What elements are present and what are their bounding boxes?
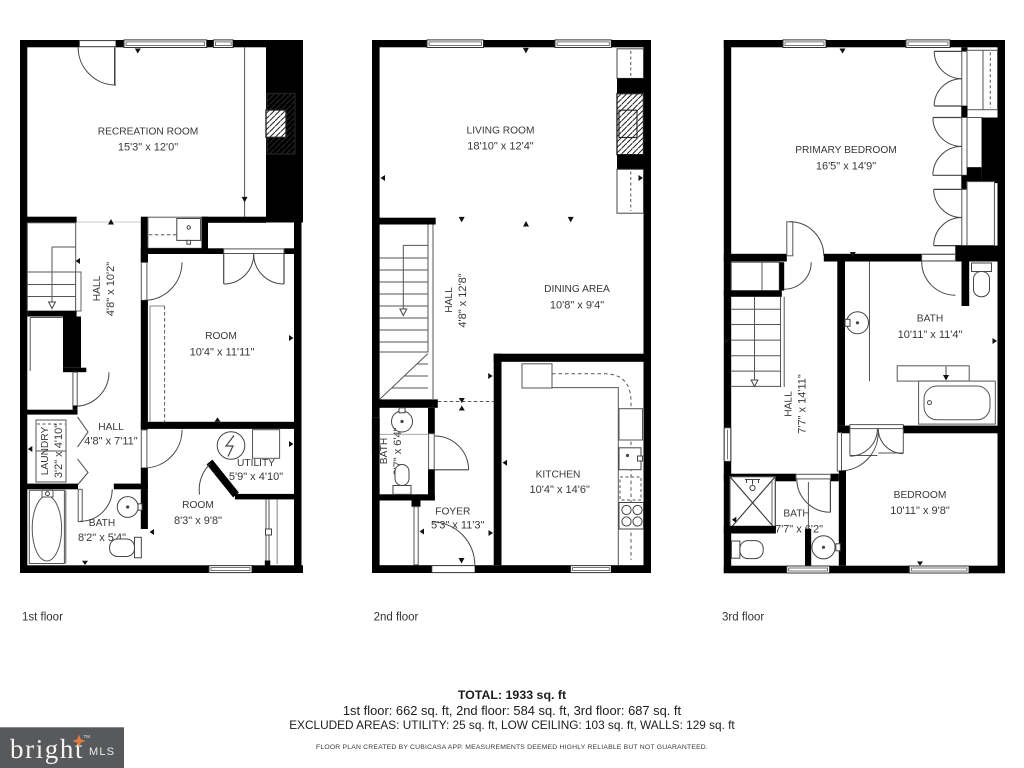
svg-text:4'8" x 10'2": 4'8" x 10'2" bbox=[105, 262, 117, 316]
svg-text:LIVING ROOM: LIVING ROOM bbox=[467, 126, 535, 137]
svg-text:HALL: HALL bbox=[98, 422, 124, 433]
svg-text:BATH: BATH bbox=[783, 509, 809, 520]
svg-text:8'3" x 9'8": 8'3" x 9'8" bbox=[174, 515, 222, 527]
svg-text:KITCHEN: KITCHEN bbox=[536, 470, 581, 481]
svg-text:5'9" x 4'10": 5'9" x 4'10" bbox=[229, 471, 283, 483]
svg-text:5'3" x 11'3": 5'3" x 11'3" bbox=[431, 520, 484, 532]
svg-text:4'8" x 12'8": 4'8" x 12'8" bbox=[457, 273, 469, 327]
svg-text:RECREATION ROOM: RECREATION ROOM bbox=[98, 127, 199, 138]
svg-text:TOTAL: 1933 sq. ft: TOTAL: 1933 sq. ft bbox=[458, 688, 566, 702]
svg-text:ROOM: ROOM bbox=[182, 500, 214, 511]
svg-text:10'4" x 11'11": 10'4" x 11'11" bbox=[190, 347, 255, 359]
svg-text:EXCLUDED AREAS: UTILITY: 25 sq: EXCLUDED AREAS: UTILITY: 25 sq. ft, LOW … bbox=[289, 718, 735, 732]
svg-text:UTILITY: UTILITY bbox=[237, 458, 275, 469]
svg-text:15'3" x 12'0": 15'3" x 12'0" bbox=[118, 142, 178, 154]
svg-text:4'8" x 7'11": 4'8" x 7'11" bbox=[84, 436, 137, 448]
svg-text:HALL: HALL bbox=[444, 287, 455, 313]
svg-text:7'7" x 6'2": 7'7" x 6'2" bbox=[775, 524, 823, 536]
svg-text:BEDROOM: BEDROOM bbox=[894, 490, 947, 501]
svg-text:PRIMARY BEDROOM: PRIMARY BEDROOM bbox=[795, 145, 897, 156]
svg-text:HALL: HALL bbox=[92, 275, 103, 301]
svg-text:bright: bright bbox=[10, 734, 84, 764]
svg-text:LAUNDRY: LAUNDRY bbox=[40, 427, 51, 476]
svg-text:16'5" x 14'9": 16'5" x 14'9" bbox=[816, 161, 876, 173]
svg-text:TM: TM bbox=[84, 734, 91, 739]
svg-text:10'11" x 11'4": 10'11" x 11'4" bbox=[898, 329, 963, 341]
svg-text:FOYER: FOYER bbox=[435, 507, 470, 518]
svg-text:HALL: HALL bbox=[784, 391, 795, 417]
svg-text:ROOM: ROOM bbox=[205, 331, 237, 342]
svg-text:7'7" x 14'11": 7'7" x 14'11" bbox=[797, 374, 809, 434]
svg-text:1st floor: 662 sq. ft, 2nd flo: 1st floor: 662 sq. ft, 2nd floor: 584 sq… bbox=[343, 703, 682, 718]
svg-text:10'8" x 9'4": 10'8" x 9'4" bbox=[550, 300, 604, 312]
svg-text:3'2" x 4'10": 3'2" x 4'10" bbox=[53, 424, 65, 478]
svg-text:BATH: BATH bbox=[917, 314, 943, 325]
svg-text:1st floor: 1st floor bbox=[22, 612, 63, 624]
svg-text:10'11" x 9'8": 10'11" x 9'8" bbox=[890, 505, 950, 517]
svg-text:18'10" x 12'4": 18'10" x 12'4" bbox=[467, 141, 534, 153]
svg-text:10'4" x 14'6": 10'4" x 14'6" bbox=[530, 484, 590, 496]
svg-text:BATH: BATH bbox=[89, 518, 115, 529]
svg-text:2nd floor: 2nd floor bbox=[374, 612, 419, 624]
svg-text:MLS: MLS bbox=[89, 746, 115, 758]
svg-text:3rd floor: 3rd floor bbox=[722, 612, 764, 624]
svg-text:DINING AREA: DINING AREA bbox=[544, 284, 610, 295]
svg-text:BATH: BATH bbox=[379, 438, 390, 464]
svg-text:FLOOR PLAN CREATED BY CUBICASA: FLOOR PLAN CREATED BY CUBICASA APP. MEAS… bbox=[316, 744, 708, 751]
